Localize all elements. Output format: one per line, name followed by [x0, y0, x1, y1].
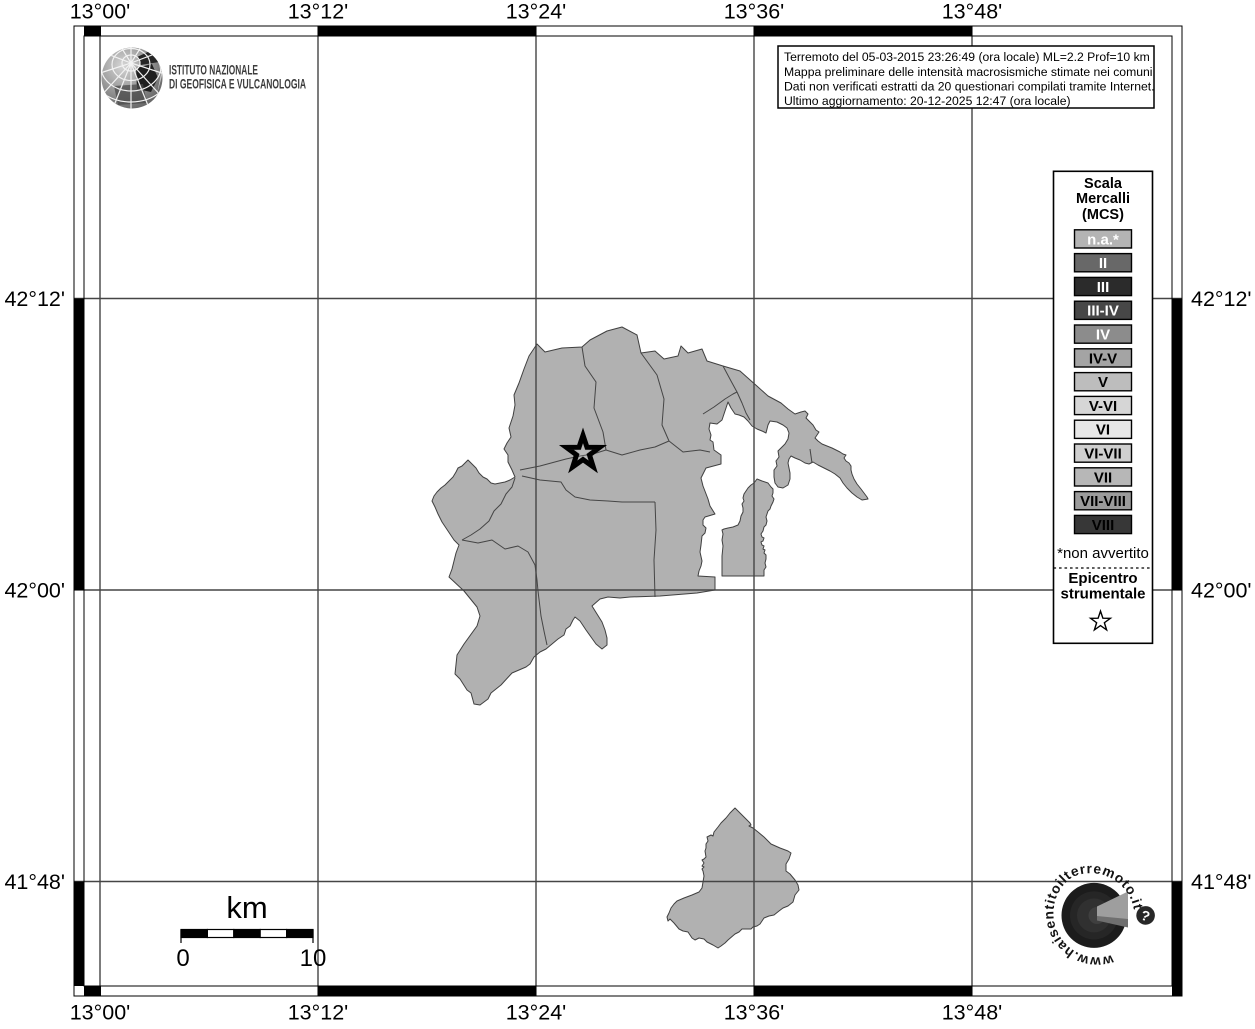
svg-text:(MCS): (MCS)	[1082, 207, 1124, 223]
svg-text:13°48': 13°48'	[942, 1001, 1003, 1025]
svg-text:Epicentro: Epicentro	[1068, 570, 1137, 587]
svg-text:n.a.*: n.a.*	[1087, 231, 1119, 248]
svg-text:13°36': 13°36'	[724, 0, 785, 24]
svg-text:VI: VI	[1096, 422, 1110, 439]
svg-text:VI-VII: VI-VII	[1084, 446, 1122, 463]
svg-text:IV-V: IV-V	[1089, 350, 1117, 367]
svg-text:41°48': 41°48'	[1191, 870, 1252, 894]
svg-text:41°48': 41°48'	[4, 870, 65, 894]
svg-text:42°00': 42°00'	[1191, 579, 1252, 603]
svg-text:VII: VII	[1094, 469, 1112, 486]
svg-text:VII-VIII: VII-VIII	[1080, 493, 1126, 510]
svg-text:III: III	[1097, 279, 1110, 296]
svg-text:Ultimo aggiornamento: 20-12-20: Ultimo aggiornamento: 20-12-2025 12:47 (…	[784, 94, 1071, 108]
svg-text:13°36': 13°36'	[724, 1001, 785, 1025]
svg-text:V-VI: V-VI	[1089, 398, 1117, 415]
svg-text:Mappa preliminare delle intens: Mappa preliminare delle intensità macros…	[784, 65, 1153, 79]
svg-text:km: km	[226, 890, 267, 925]
svg-text:IV: IV	[1096, 327, 1110, 344]
svg-text:V: V	[1098, 374, 1108, 391]
svg-text:42°00': 42°00'	[4, 579, 65, 603]
svg-text:Terremoto del 05-03-2015 23:26: Terremoto del 05-03-2015 23:26:49 (ora l…	[784, 50, 1150, 64]
svg-text:*non avvertito: *non avvertito	[1057, 545, 1149, 562]
svg-text:DI GEOFISICA E VULCANOLOGIA: DI GEOFISICA E VULCANOLOGIA	[169, 75, 306, 91]
svg-text:Dati non verificati estratti d: Dati non verificati estratti da 20 quest…	[784, 80, 1155, 94]
svg-text:strumentale: strumentale	[1060, 586, 1145, 603]
svg-text:10: 10	[300, 945, 327, 972]
svg-text:42°12': 42°12'	[1191, 287, 1252, 311]
svg-text:III-IV: III-IV	[1087, 303, 1119, 320]
svg-text:13°48': 13°48'	[942, 0, 1003, 24]
svg-text:13°24': 13°24'	[506, 0, 567, 24]
svg-text:42°12': 42°12'	[4, 287, 65, 311]
svg-text:0: 0	[176, 945, 189, 972]
svg-text:13°24': 13°24'	[506, 1001, 567, 1025]
svg-text:Mercalli: Mercalli	[1076, 191, 1130, 207]
svg-text:II: II	[1099, 255, 1107, 272]
svg-text:13°12': 13°12'	[288, 1001, 349, 1025]
svg-text:Scala: Scala	[1084, 176, 1123, 192]
svg-text:13°12': 13°12'	[288, 0, 349, 24]
svg-text:13°00': 13°00'	[70, 1001, 131, 1025]
svg-text:13°00': 13°00'	[70, 0, 131, 24]
svg-text:VIII: VIII	[1092, 517, 1115, 534]
